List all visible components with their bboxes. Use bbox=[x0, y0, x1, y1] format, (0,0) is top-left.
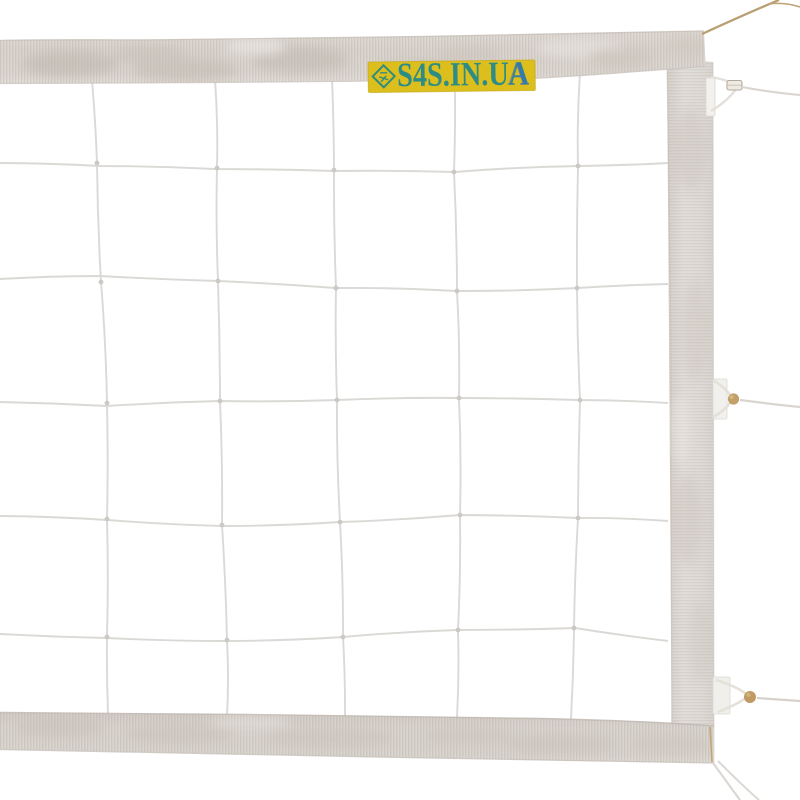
svg-text:A: A bbox=[507, 56, 530, 93]
